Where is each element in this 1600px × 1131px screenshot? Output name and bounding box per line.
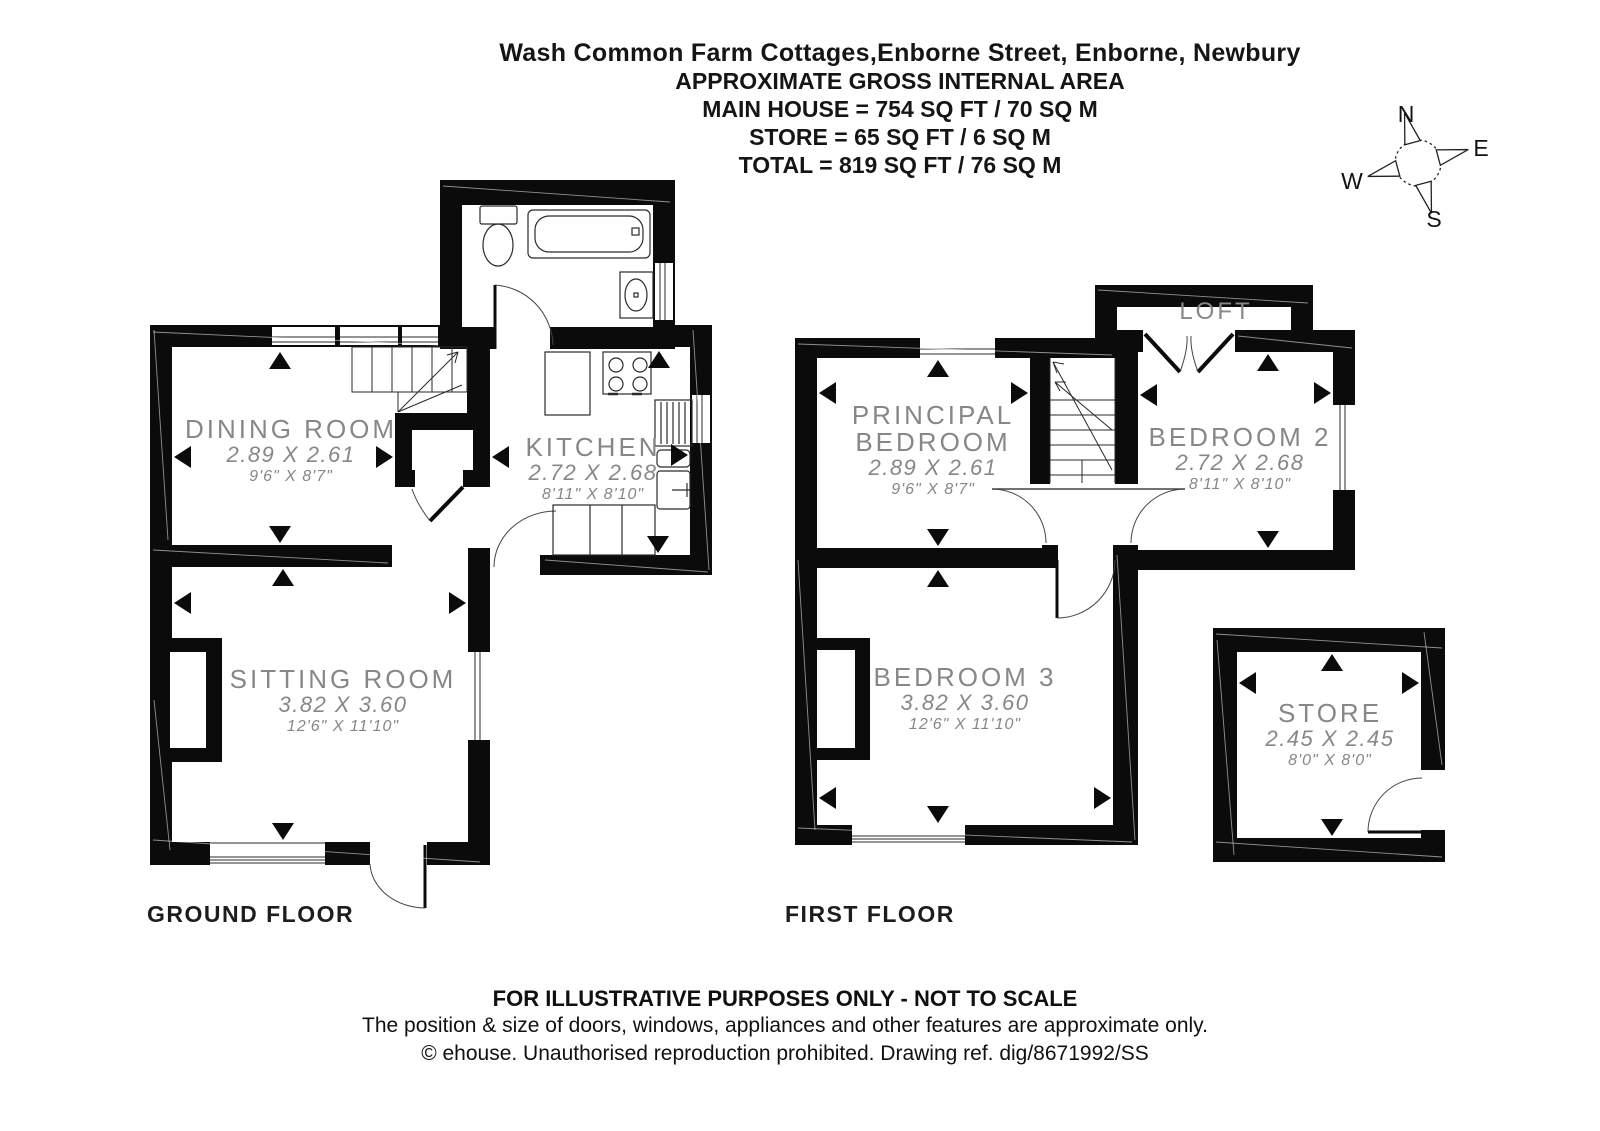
room-name: PRINCIPAL [852,402,1014,429]
room-metric-dims: 3.82 X 3.60 [873,691,1056,715]
room-imperial-dims: 12'6" X 11'10" [873,715,1056,734]
first-floor-plan [795,285,1445,862]
window [692,395,710,443]
room-name: KITCHEN [525,434,660,461]
first-walls [795,285,1445,862]
room-name: LOFT [1179,298,1252,325]
measurement-arrow [1094,787,1111,809]
room-imperial-dims: 8'11" X 8'10" [1148,475,1331,494]
room-imperial-dims: 8'0" X 8'0" [1265,751,1394,770]
room-name: BEDROOM 3 [873,664,1056,691]
measurement-arrow [647,536,669,553]
room-name: SITTING ROOM [230,666,457,693]
compass-n-label: N [1398,101,1415,127]
staircase-ground [352,347,467,412]
staircase-first [1050,358,1115,483]
footer-disclaimer-text: The position & size of doors, windows, a… [85,1012,1485,1040]
measurement-arrow [492,446,509,468]
room-imperial-dims: 8'11" X 8'10" [525,485,660,504]
room-label-sitting: SITTING ROOM 3.82 X 3.60 12'6" X 11'10" [230,666,457,736]
room-metric-dims: 2.45 X 2.45 [1265,727,1394,751]
measurement-arrow [272,823,294,840]
sitting-room-chimney [150,638,222,762]
measurement-arrow [1140,384,1157,406]
room-name: STORE [1265,700,1394,727]
understairs-closet [395,413,490,521]
measurement-arrow [1321,654,1343,671]
measurement-arrow [269,352,291,369]
measurement-arrow [1257,531,1279,548]
measurement-arrow [927,806,949,823]
measurement-arrow [269,526,291,543]
compass-e-label: E [1473,135,1488,161]
room-imperial-dims: 9'6" X 8'7" [185,467,397,486]
first-floor-label: FIRST FLOOR [785,901,955,928]
room-label-store: STORE 2.45 X 2.45 8'0" X 8'0" [1265,700,1394,770]
loft-doors [1145,334,1233,372]
bathtub [528,210,650,258]
room-imperial-dims: 12'6" X 11'10" [230,717,457,736]
room-metric-dims: 2.72 X 2.68 [1148,451,1331,475]
window [272,327,335,345]
toilet [480,206,517,266]
measurement-arrow [819,382,836,404]
compass-w-label: W [1341,168,1363,194]
window [470,652,488,740]
door-arc [495,285,553,349]
room-metric-dims: 2.89 X 2.61 [852,456,1014,480]
window [852,827,965,845]
measurement-arrow [1257,354,1279,371]
measurement-arrow [927,570,949,587]
measurement-arrow [449,592,466,614]
room-imperial-dims: 9'6" X 8'7" [852,480,1014,499]
wash-basin [620,272,653,318]
ground-doors [370,285,556,908]
bathroom-fixtures [480,206,653,318]
compass-west-ray [1366,161,1400,184]
ground-walls [150,180,712,865]
window [402,327,438,345]
counter [553,505,655,555]
counter [545,352,590,415]
window [210,842,325,865]
measurement-arrow [1321,819,1343,836]
measurement-arrow [1314,382,1331,404]
front-door-arc [370,845,425,908]
room-metric-dims: 2.89 X 2.61 [185,443,397,467]
stove [603,352,651,394]
measurement-arrow [272,569,294,586]
door-arc [1057,560,1115,618]
ground-floor-label: GROUND FLOOR [147,901,354,928]
measurement-arrow [927,360,949,377]
compass-s-label: S [1426,206,1441,232]
room-label-bedroom2: BEDROOM 2 2.72 X 2.68 8'11" X 8'10" [1148,424,1331,494]
bedroom3-chimney [795,638,870,760]
measurement-arrow [671,444,688,466]
room-name: BEDROOM [852,429,1014,456]
footer-block: FOR ILLUSTRATIVE PURPOSES ONLY - NOT TO … [85,986,1485,1068]
room-label-loft: LOFT [1179,298,1252,325]
room-label-kitchen: KITCHEN 2.72 X 2.68 8'11" X 8'10" [525,434,660,504]
footer-copyright: © ehouse. Unauthorised reproduction proh… [85,1040,1485,1068]
room-metric-dims: 3.82 X 3.60 [230,693,457,717]
room-label-principal-bedroom: PRINCIPAL BEDROOM 2.89 X 2.61 9'6" X 8'7… [852,402,1014,499]
measurement-arrow [1402,672,1419,694]
ground-floor-plan [150,180,712,908]
room-label-bedroom3: BEDROOM 3 3.82 X 3.60 12'6" X 11'10" [873,664,1056,734]
store-door [1368,778,1445,832]
window [1335,405,1353,490]
measurement-arrow [927,529,949,546]
footer-disclaimer-title: FOR ILLUSTRATIVE PURPOSES ONLY - NOT TO … [85,986,1485,1012]
room-name: BEDROOM 2 [1148,424,1331,451]
floorplan-drawing: N E W S [0,0,1600,1131]
room-name: DINING ROOM [185,416,397,443]
measurement-arrow [174,592,191,614]
measurement-arrow [819,787,836,809]
room-label-dining: DINING ROOM 2.89 X 2.61 9'6" X 8'7" [185,416,397,486]
window [655,263,673,320]
compass-rose: N E W S [1341,99,1489,232]
floorplan-page: Wash Common Farm Cottages,Enborne Street… [0,0,1600,1131]
room-metric-dims: 2.72 X 2.68 [525,461,660,485]
measurement-arrow [1239,672,1256,694]
compass-east-ray [1436,142,1470,165]
